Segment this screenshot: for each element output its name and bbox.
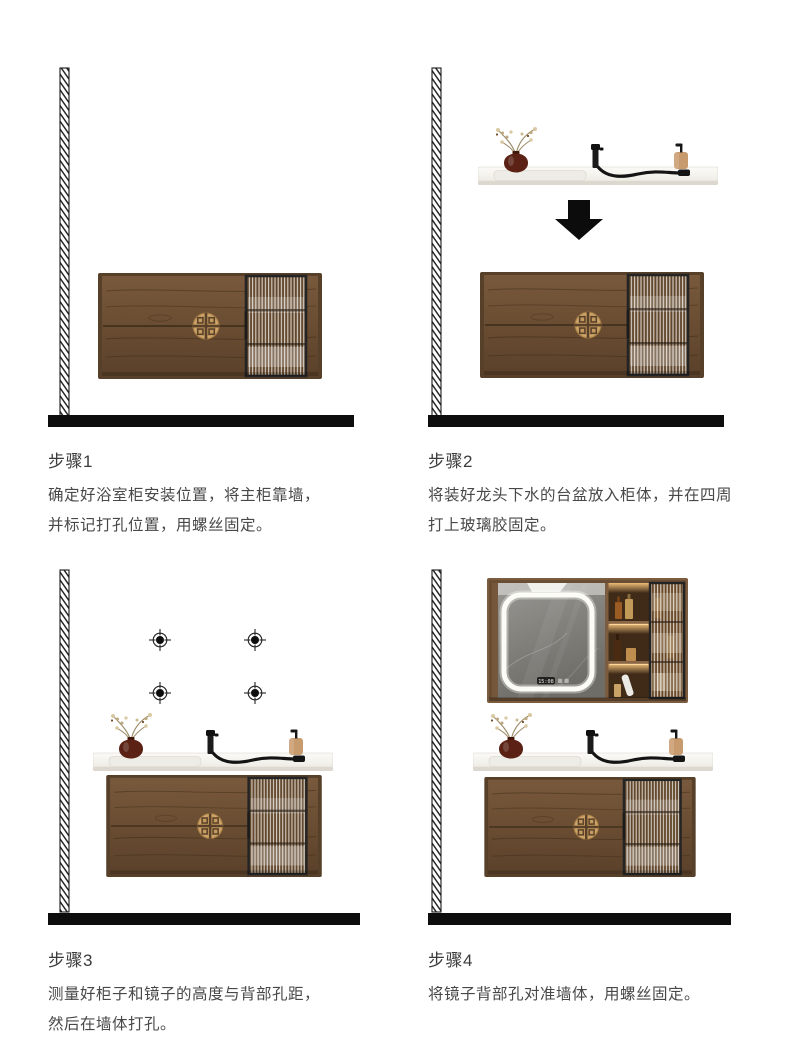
step1-text: 步骤1 确定好浴室柜安装位置，将主柜靠墙， 并标记打孔位置，用螺丝固定。	[48, 447, 388, 541]
main-cabinet	[98, 273, 322, 379]
floor-line	[48, 415, 354, 427]
floor-line	[428, 913, 731, 925]
drill-mark-icon	[244, 629, 266, 651]
step-title: 步骤2	[428, 447, 768, 472]
step-title: 步骤3	[48, 946, 388, 971]
basin-countertop-assembly	[93, 713, 333, 771]
wall-hatch	[60, 68, 69, 416]
step-title: 步骤1	[48, 447, 388, 472]
main-cabinet	[480, 272, 704, 378]
step-title: 步骤4	[428, 946, 768, 971]
step-desc-line: 将镜子背部孔对准墙体，用螺丝固定。	[428, 980, 768, 1010]
step3-text: 步骤3 测量好柜子和镜子的高度与背部孔距， 然后在墙体打孔。	[48, 946, 388, 1040]
wall-hatch	[60, 570, 69, 912]
step-desc-line: 确定好浴室柜安装位置，将主柜靠墙，	[48, 481, 388, 511]
step2-text: 步骤2 将装好龙头下水的台盆放入柜体，并在四周 打上玻璃胶固定。	[428, 447, 768, 541]
wall-hatch	[432, 68, 441, 416]
step-desc-line: 测量好柜子和镜子的高度与背部孔距，	[48, 980, 388, 1010]
down-arrow-icon	[555, 200, 603, 240]
vanity-cabinet	[106, 775, 322, 877]
floor-line	[48, 913, 360, 925]
step3-illustration	[40, 558, 390, 930]
basin-countertop-assembly	[478, 127, 718, 185]
step1-illustration	[40, 60, 390, 432]
basin-countertop-assembly	[473, 713, 713, 771]
step-desc-line: 将装好龙头下水的台盆放入柜体，并在四周	[428, 481, 768, 511]
drill-mark-icon	[149, 629, 171, 651]
installation-guide: 15:08	[0, 0, 790, 1061]
mirror-cabinet	[487, 578, 688, 703]
step4-text: 步骤4 将镜子背部孔对准墙体，用螺丝固定。	[428, 946, 768, 1010]
step4-illustration	[420, 558, 770, 930]
step-desc-line: 然后在墙体打孔。	[48, 1010, 388, 1040]
wall-hatch	[432, 570, 441, 912]
drill-mark-icon	[149, 682, 171, 704]
step-desc-line: 打上玻璃胶固定。	[428, 511, 768, 541]
vanity-cabinet	[484, 777, 695, 877]
drill-mark-icon	[244, 682, 266, 704]
step-desc-line: 并标记打孔位置，用螺丝固定。	[48, 511, 388, 541]
floor-line	[428, 415, 724, 427]
step2-illustration	[420, 60, 770, 432]
